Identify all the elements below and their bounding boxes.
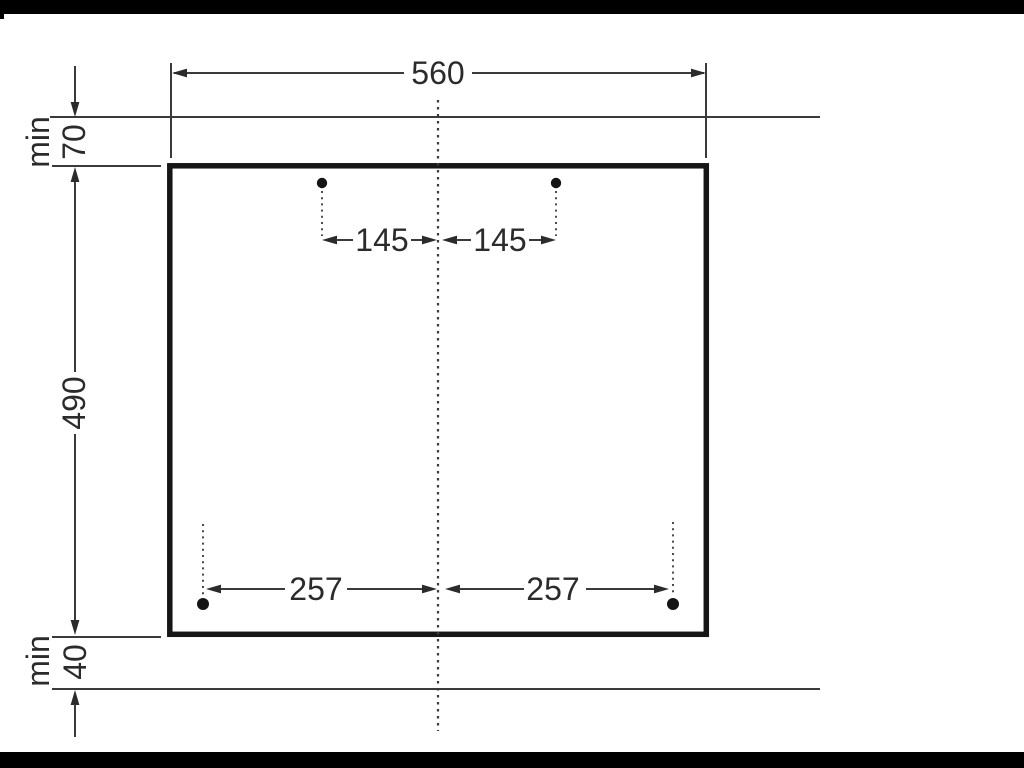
bottom-hole-left-offset: 257: [289, 571, 342, 607]
arrow-right-icon: [654, 585, 669, 594]
diagram-page: 560 min 70 490 min 40 145: [0, 0, 1024, 768]
bottom-hole-right-offset: 257: [526, 571, 579, 607]
installation-diagram: 560 min 70 490 min 40 145: [0, 0, 1024, 768]
top-letterbox-bar: [0, 0, 1024, 14]
arrow-down-icon: [71, 102, 80, 117]
top-left-bar-notch: [0, 0, 4, 19]
dimension-257-right: 257: [445, 571, 669, 607]
min-label-top: min: [20, 116, 56, 168]
bottom-letterbox-bar: [0, 752, 1024, 768]
dimension-145-left: 145: [322, 222, 437, 258]
arrow-left-icon: [322, 236, 337, 245]
dimension-145-right: 145: [442, 222, 556, 258]
arrow-left-icon: [445, 585, 460, 594]
fixing-hole-top-right: [551, 178, 561, 188]
arrow-down-icon: [71, 620, 80, 635]
arrow-right-icon: [541, 236, 556, 245]
dimension-490: 490: [56, 167, 92, 635]
top-clearance-value: 70: [56, 124, 92, 160]
cutout-height-label: 490: [56, 376, 92, 429]
arrow-left-icon: [206, 585, 221, 594]
arrow-right-icon: [422, 236, 437, 245]
arrow-up-icon: [71, 167, 80, 182]
min-label-bottom: min: [20, 635, 56, 687]
dimension-min-40: min 40: [20, 635, 93, 737]
dimension-257-left: 257: [206, 571, 437, 607]
cutout-width-label: 560: [411, 55, 464, 91]
top-hole-left-offset: 145: [355, 222, 408, 258]
fixing-hole-top-left: [317, 178, 327, 188]
top-hole-right-offset: 145: [473, 222, 526, 258]
arrow-left-icon: [442, 236, 457, 245]
arrow-right-icon: [422, 585, 437, 594]
bottom-clearance-value: 40: [57, 644, 93, 680]
arrow-left-icon: [172, 69, 187, 78]
fixing-hole-bottom-right: [667, 598, 679, 610]
fixing-hole-bottom-left: [197, 598, 209, 610]
arrow-right-icon: [691, 69, 706, 78]
arrow-up-icon: [71, 690, 80, 705]
